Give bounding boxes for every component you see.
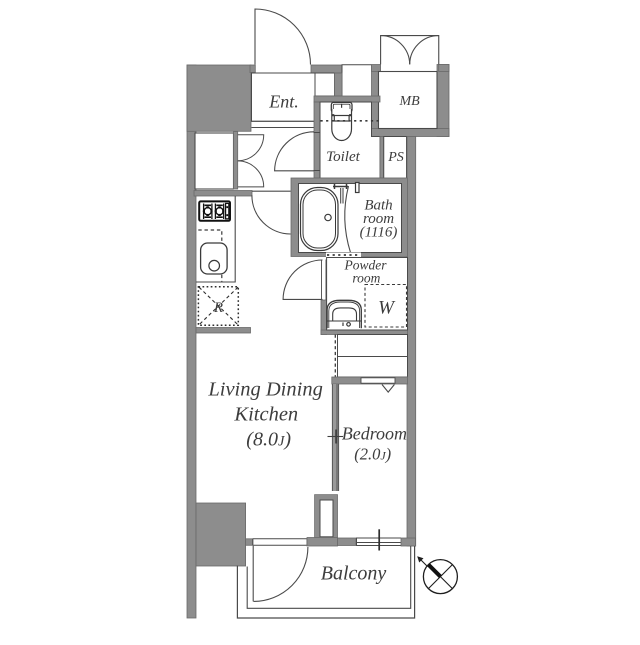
svg-text:Toilet: Toilet <box>326 149 360 165</box>
svg-text:(1116): (1116) <box>360 225 398 241</box>
svg-text:W: W <box>378 298 396 319</box>
svg-text:Ent.: Ent. <box>268 92 299 112</box>
svg-text:Kitchen: Kitchen <box>233 404 298 426</box>
svg-text:room: room <box>352 271 380 286</box>
svg-text:Living Dining: Living Dining <box>207 379 322 401</box>
svg-text:R: R <box>213 300 223 316</box>
svg-text:(2.0J): (2.0J) <box>354 445 391 464</box>
svg-text:(8.0J): (8.0J) <box>246 429 291 451</box>
svg-text:MB: MB <box>398 94 420 109</box>
svg-text:Bedroom: Bedroom <box>342 424 407 444</box>
svg-text:Balcony: Balcony <box>321 563 387 585</box>
svg-text:PS: PS <box>387 150 404 165</box>
